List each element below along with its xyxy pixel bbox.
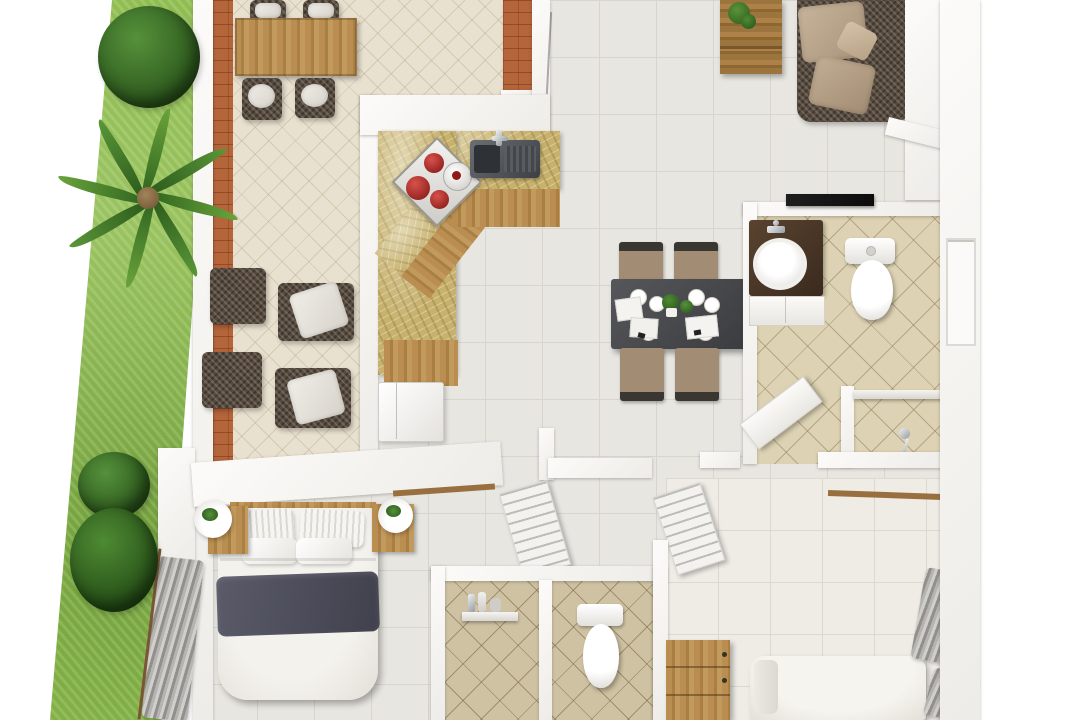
- vanity-cabinet: [749, 296, 825, 326]
- vanity-sink: [753, 238, 807, 290]
- lounge-ottoman: [202, 352, 262, 408]
- table-plant: [680, 300, 693, 313]
- console-shelf-line: [720, 46, 782, 49]
- lounge-chair: [275, 368, 351, 428]
- bathroom-dark-counter: [786, 194, 874, 206]
- chair-cushion: [255, 3, 281, 18]
- bathroom-main-bottom-wall: [700, 452, 740, 468]
- garden-shrub: [70, 508, 158, 612]
- shower-bottle: [468, 594, 475, 612]
- lounge-cushion: [288, 280, 350, 339]
- toilet2-tank: [577, 604, 623, 626]
- vanity-faucet: [767, 226, 785, 233]
- bathroom-main-bottom-wall: [818, 452, 947, 468]
- duvet-fold-line: [220, 558, 376, 561]
- bathroom2-top-wall: [431, 566, 667, 581]
- bathroom2-left-wall: [431, 566, 445, 720]
- bathroom-window-frame: [946, 238, 976, 346]
- hand-shower-head: [899, 428, 910, 439]
- shower-shelf: [854, 390, 947, 399]
- vanity-cabinet-seam: [785, 297, 786, 323]
- brick-planter: [503, 0, 532, 97]
- hall-wall: [548, 458, 652, 478]
- plate: [704, 297, 720, 313]
- patio-dining-table: [235, 18, 357, 76]
- dining-chair: [675, 348, 719, 401]
- wood-dresser: [666, 640, 730, 720]
- lamp-plant: [202, 508, 218, 521]
- kitchen-left-wall: [360, 95, 378, 462]
- kitchen-back-wall: [360, 95, 550, 135]
- patio-chair: [242, 78, 282, 120]
- lamp-plant: [386, 505, 401, 517]
- bed-second-pillow: [754, 660, 778, 714]
- lounge-ottoman: [210, 268, 266, 324]
- dresser-seam: [666, 666, 730, 668]
- refrigerator-seam: [396, 383, 397, 439]
- red-pot: [430, 190, 449, 209]
- patio-floor-top: [360, 0, 503, 97]
- bathroom2-divider-wall: [539, 580, 552, 720]
- dresser-seam: [666, 694, 730, 696]
- lounge-cushion: [286, 368, 346, 425]
- toilet2-bowl: [583, 624, 619, 688]
- toilet-flush-button: [866, 246, 876, 256]
- garden-bush-large: [98, 6, 200, 108]
- navy-blanket: [216, 571, 380, 637]
- shower-bottle: [478, 592, 486, 612]
- sink-faucet-spout: [492, 136, 508, 141]
- sink-drainboard: [504, 146, 536, 172]
- dresser-knob: [722, 678, 727, 683]
- dining-chair: [620, 348, 664, 401]
- toilet-bowl: [851, 260, 893, 320]
- vanity-faucet-knob: [773, 220, 779, 226]
- console-plant: [741, 14, 756, 29]
- chair-cushion: [248, 84, 275, 108]
- left-wall-lower: [158, 448, 195, 564]
- patio-chair: [295, 78, 335, 118]
- shower-bottle: [490, 598, 501, 612]
- sink-basin: [474, 145, 500, 173]
- red-pot: [406, 176, 430, 200]
- outer-right-wall: [940, 0, 980, 720]
- red-pot: [424, 153, 444, 173]
- table-plant-pot: [666, 308, 677, 317]
- chair-cushion: [308, 3, 334, 18]
- lounge-chair: [278, 283, 354, 341]
- stock-pot-lid: [452, 171, 461, 180]
- palm-trunk: [137, 187, 159, 209]
- refrigerator: [378, 382, 444, 442]
- chair-cushion: [301, 84, 328, 107]
- dresser-knob: [722, 652, 727, 657]
- napkin: [685, 314, 719, 339]
- shower-shelf2: [462, 612, 518, 621]
- cabinet-front-end: [384, 340, 458, 386]
- floor-plan-render: [0, 0, 1067, 720]
